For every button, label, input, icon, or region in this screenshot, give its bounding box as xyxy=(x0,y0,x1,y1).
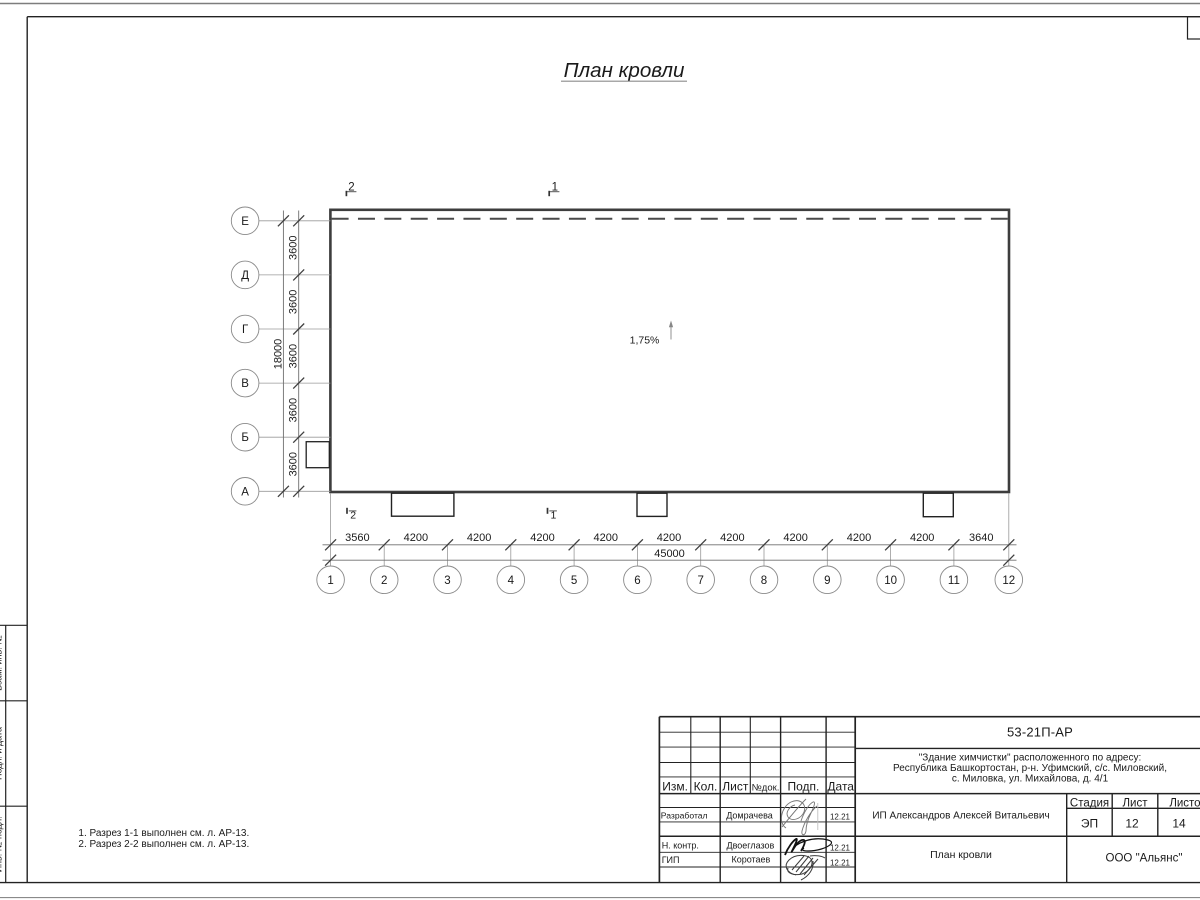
svg-text:Г: Г xyxy=(242,324,249,336)
svg-text:Е: Е xyxy=(241,216,249,228)
svg-text:2. Разрез 2-2 выполнен см. л.: 2. Разрез 2-2 выполнен см. л. АР-13. xyxy=(78,839,249,850)
svg-text:3600: 3600 xyxy=(287,290,299,314)
svg-text:18000: 18000 xyxy=(273,339,285,370)
svg-text:12.21: 12.21 xyxy=(830,843,851,852)
svg-text:Подп.: Подп. xyxy=(787,780,819,794)
svg-text:4200: 4200 xyxy=(910,532,934,544)
svg-text:ИП Александров Алексей Виталье: ИП Александров Алексей Витальевич xyxy=(872,811,1049,822)
svg-text:1,75%: 1,75% xyxy=(630,334,660,346)
svg-text:4200: 4200 xyxy=(783,532,807,544)
svg-text:ГИП: ГИП xyxy=(662,855,680,865)
svg-text:3600: 3600 xyxy=(287,236,299,260)
svg-text:Лист: Лист xyxy=(1123,797,1149,809)
svg-text:Инв. № подл.: Инв. № подл. xyxy=(0,816,4,872)
svg-text:3640: 3640 xyxy=(969,532,993,544)
svg-text:3600: 3600 xyxy=(287,398,299,422)
svg-text:Кол.: Кол. xyxy=(694,780,718,794)
svg-text:3600: 3600 xyxy=(287,344,299,368)
svg-text:"Здание химчистки" расположенн: "Здание химчистки" расположенного по адр… xyxy=(919,753,1142,764)
svg-text:А: А xyxy=(241,486,249,498)
svg-text:Лист: Лист xyxy=(722,780,749,794)
svg-text:1: 1 xyxy=(327,575,333,587)
svg-text:10: 10 xyxy=(884,575,897,587)
svg-text:Изм.: Изм. xyxy=(662,780,688,794)
svg-text:11: 11 xyxy=(948,575,960,587)
svg-text:14: 14 xyxy=(1172,816,1186,830)
svg-text:8: 8 xyxy=(761,575,767,587)
svg-text:2: 2 xyxy=(381,575,387,587)
svg-text:53-21П-АР: 53-21П-АР xyxy=(1007,725,1073,740)
svg-text:Б: Б xyxy=(241,432,249,444)
svg-text:Листов: Листов xyxy=(1169,797,1200,809)
svg-text:1: 1 xyxy=(550,510,556,522)
svg-text:Республика Башкортостан, р-н.: Республика Башкортостан, р-н. Уфимский, … xyxy=(893,762,1167,774)
svg-text:№док.: №док. xyxy=(752,782,780,793)
svg-text:Коротаев: Коротаев xyxy=(731,855,770,865)
svg-text:Подп. и дата: Подп. и дата xyxy=(0,727,4,780)
svg-text:4200: 4200 xyxy=(594,532,618,544)
svg-text:4200: 4200 xyxy=(720,532,744,544)
svg-text:12.21: 12.21 xyxy=(830,813,851,822)
svg-text:План кровли: План кровли xyxy=(930,849,992,861)
svg-text:45000: 45000 xyxy=(654,548,685,560)
svg-text:с. Миловка, ул. Михайлова, д.: с. Миловка, ул. Михайлова, д. 4/1 xyxy=(952,774,1109,785)
svg-text:Домрачева: Домрачева xyxy=(726,810,773,820)
svg-text:4200: 4200 xyxy=(404,532,428,544)
svg-text:6: 6 xyxy=(634,575,640,587)
svg-text:Д: Д xyxy=(241,270,249,282)
svg-text:Стадия: Стадия xyxy=(1070,797,1109,809)
svg-text:1. Разрез 1-1 выполнен см. л.: 1. Разрез 1-1 выполнен см. л. АР-13. xyxy=(78,828,249,839)
svg-text:4: 4 xyxy=(508,575,515,587)
svg-text:3560: 3560 xyxy=(345,532,369,544)
svg-text:4200: 4200 xyxy=(847,532,871,544)
svg-text:3: 3 xyxy=(444,575,450,587)
svg-text:Дата: Дата xyxy=(827,780,854,794)
svg-text:Разработал: Разработал xyxy=(661,811,708,821)
svg-text:7: 7 xyxy=(697,575,703,587)
svg-text:12.21: 12.21 xyxy=(830,858,851,867)
svg-text:ЭП: ЭП xyxy=(1081,816,1098,830)
svg-text:ООО "Альянс": ООО "Альянс" xyxy=(1106,853,1183,865)
svg-text:5: 5 xyxy=(571,575,577,587)
svg-text:План кровли: План кровли xyxy=(564,59,685,82)
svg-text:Н. контр.: Н. контр. xyxy=(662,840,699,850)
svg-text:3600: 3600 xyxy=(287,452,299,476)
svg-text:2: 2 xyxy=(350,510,356,522)
svg-text:Двоеглазов: Двоеглазов xyxy=(726,840,774,850)
svg-text:В: В xyxy=(241,378,249,390)
svg-text:12: 12 xyxy=(1002,575,1015,587)
svg-text:Взам. инв. №: Взам. инв. № xyxy=(0,635,4,691)
svg-text:4200: 4200 xyxy=(530,532,554,544)
svg-text:12: 12 xyxy=(1125,816,1139,830)
svg-text:9: 9 xyxy=(824,575,830,587)
svg-text:4200: 4200 xyxy=(467,532,491,544)
svg-text:4200: 4200 xyxy=(657,532,681,544)
